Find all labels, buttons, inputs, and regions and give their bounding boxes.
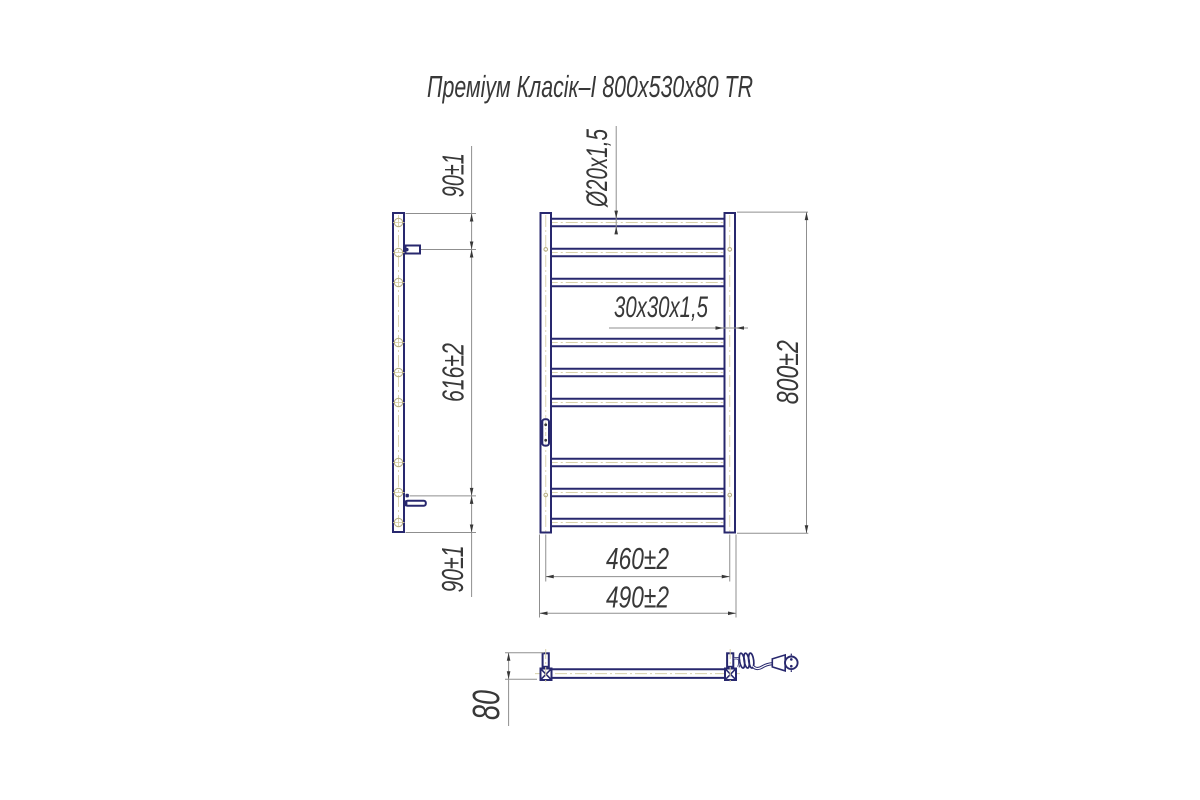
svg-text:90±1: 90±1: [435, 546, 470, 593]
svg-text:616±2: 616±2: [436, 343, 471, 402]
svg-text:Преміум Класік–І 800х530х80 TR: Преміум Класік–І 800х530х80 TR: [427, 69, 753, 104]
svg-text:800±2: 800±2: [770, 340, 805, 404]
svg-text:490±2: 490±2: [606, 580, 669, 615]
svg-text:90±1: 90±1: [436, 153, 471, 197]
svg-text:80: 80: [466, 690, 508, 720]
svg-text:460±2: 460±2: [606, 541, 669, 576]
svg-text:30х30х1,5: 30х30х1,5: [614, 291, 708, 324]
svg-text:Ø20х1,5: Ø20х1,5: [581, 129, 614, 208]
